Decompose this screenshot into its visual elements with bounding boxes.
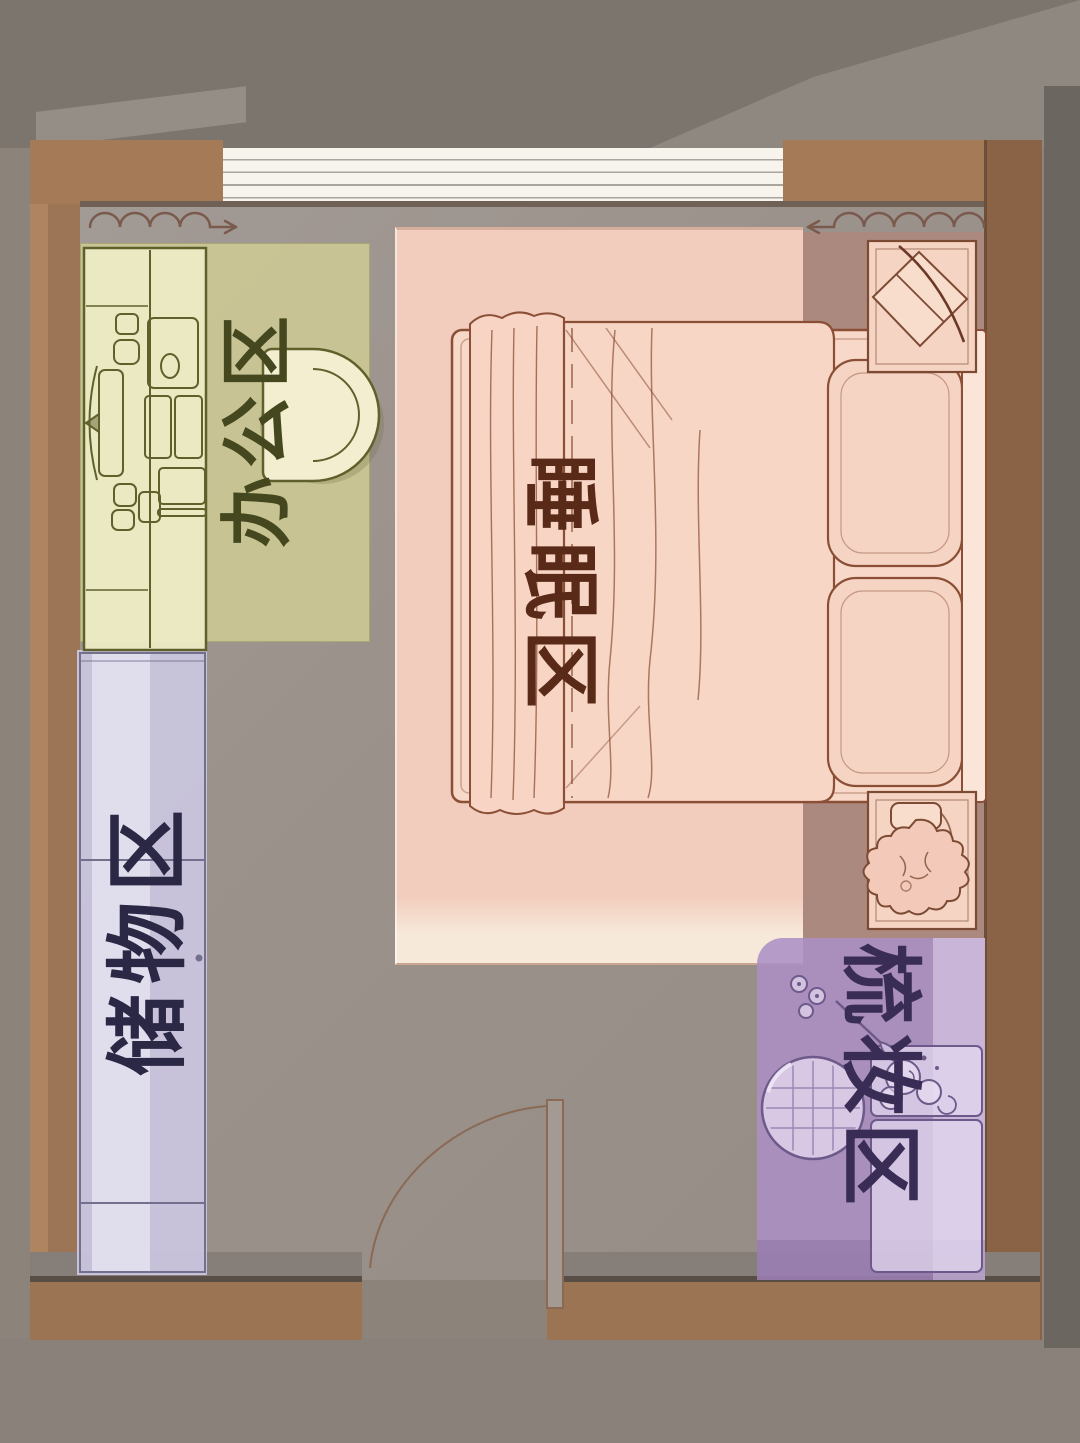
door-swing-icon: [370, 1100, 563, 1308]
curtain-left-icon: [90, 213, 236, 233]
floor-plan-canvas: 办公区 睡眠区 储物区 梳妆区: [0, 0, 1080, 1443]
storage-zone-label: 储物区: [108, 800, 190, 1076]
furniture-drawing-layer: [0, 0, 1080, 1443]
perfume-icon: [791, 976, 825, 1018]
nightstand-top-icon: [868, 241, 976, 372]
dressing-zone-label: 梳妆区: [838, 943, 920, 1213]
headboard: [962, 330, 986, 802]
office-zone-label: 办公区: [222, 308, 294, 548]
curtain-right-icon: [808, 213, 984, 233]
sleeping-zone-label: 睡眠区: [521, 454, 599, 718]
nightstand-bottom-icon: [864, 792, 977, 929]
desk-icon: [84, 248, 206, 650]
duvet: [564, 322, 834, 802]
